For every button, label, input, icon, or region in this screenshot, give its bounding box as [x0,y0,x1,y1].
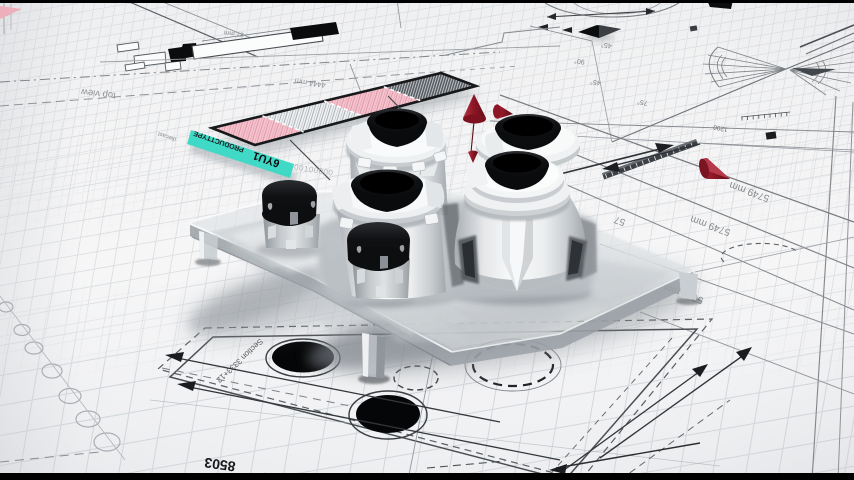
svg-text:45°: 45° [600,41,612,50]
svg-text:90°: 90° [573,57,585,66]
svg-text:75°: 75° [636,98,648,107]
svg-text:45°: 45° [589,78,601,87]
